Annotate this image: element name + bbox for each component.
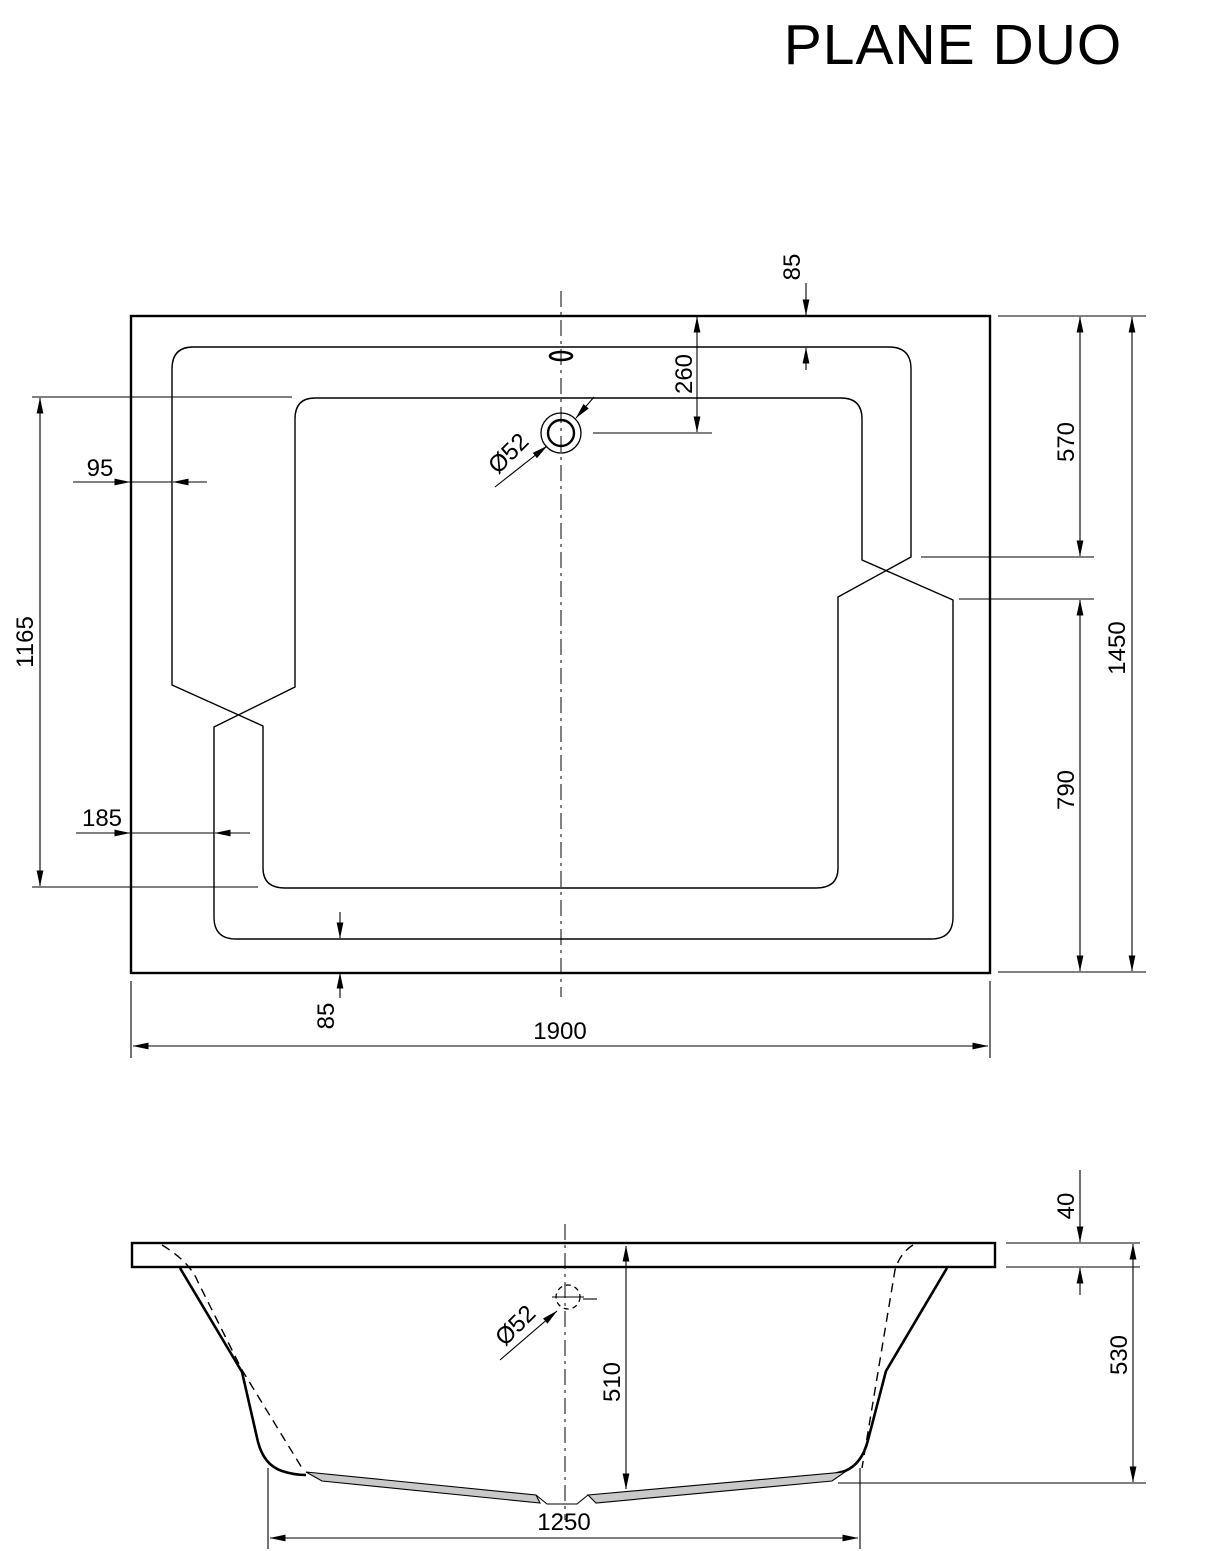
overall-width-label: 1450 xyxy=(1104,621,1131,674)
technical-drawing: PLANE DUO Ø52 85 xyxy=(0,0,1231,1551)
dim-floor-length: 1165 xyxy=(12,397,292,887)
dim-rim-left-lower: 185 xyxy=(76,805,250,833)
dim-inner-depth: 510 xyxy=(599,1246,626,1489)
inner-depth-label: 510 xyxy=(599,1362,626,1402)
dim-rim-bottom: 85 xyxy=(313,912,340,1029)
rim-left-upper-label: 95 xyxy=(87,455,114,482)
drain-offset-label: 260 xyxy=(671,354,698,394)
dim-drain-diameter-top: Ø52 xyxy=(483,397,594,487)
rim-bottom-label: 85 xyxy=(313,1003,340,1030)
rim-top-label: 85 xyxy=(779,254,806,281)
dim-drain-diameter-side: Ø52 xyxy=(490,1300,557,1360)
dim-overall-height: 530 xyxy=(838,1244,1146,1483)
dim-drain-offset: 260 xyxy=(593,317,712,433)
floor-length-label: 1165 xyxy=(12,616,39,668)
base-length-label: 1250 xyxy=(537,1509,590,1536)
dim-rim-thickness: 40 xyxy=(1006,1170,1140,1295)
rim-deck xyxy=(132,1243,995,1267)
dim-right-lower-section: 790 xyxy=(959,599,1094,971)
wall-profile-left xyxy=(180,1268,306,1475)
floor-base-left xyxy=(306,1472,540,1503)
drain-diameter-label: Ø52 xyxy=(483,428,534,479)
rim-left-lower-label: 185 xyxy=(82,805,122,832)
drawing-sheet: PLANE DUO Ø52 85 xyxy=(0,0,1231,1551)
dim-rim-left-upper: 95 xyxy=(73,455,207,482)
overall-length-label: 1900 xyxy=(533,1018,586,1045)
drawing-title: PLANE DUO xyxy=(784,13,1122,77)
side-view: Ø52 40 530 510 1250 xyxy=(132,1170,1146,1549)
top-view: Ø52 85 260 95 185 xyxy=(12,254,1146,1058)
rim-thickness-label: 40 xyxy=(1053,1193,1080,1220)
dim-right-upper-section: 570 xyxy=(921,317,1094,557)
dim-overall-width: 1450 xyxy=(998,316,1146,972)
right-lower-label: 790 xyxy=(1053,770,1080,810)
right-upper-label: 570 xyxy=(1053,422,1080,462)
tub-inner-contour-b xyxy=(214,398,953,939)
drain-recess xyxy=(536,1495,588,1504)
overall-height-label: 530 xyxy=(1106,1335,1133,1375)
dim-rim-top: 85 xyxy=(779,254,806,370)
drain-diameter-side-label: Ø52 xyxy=(490,1300,541,1351)
